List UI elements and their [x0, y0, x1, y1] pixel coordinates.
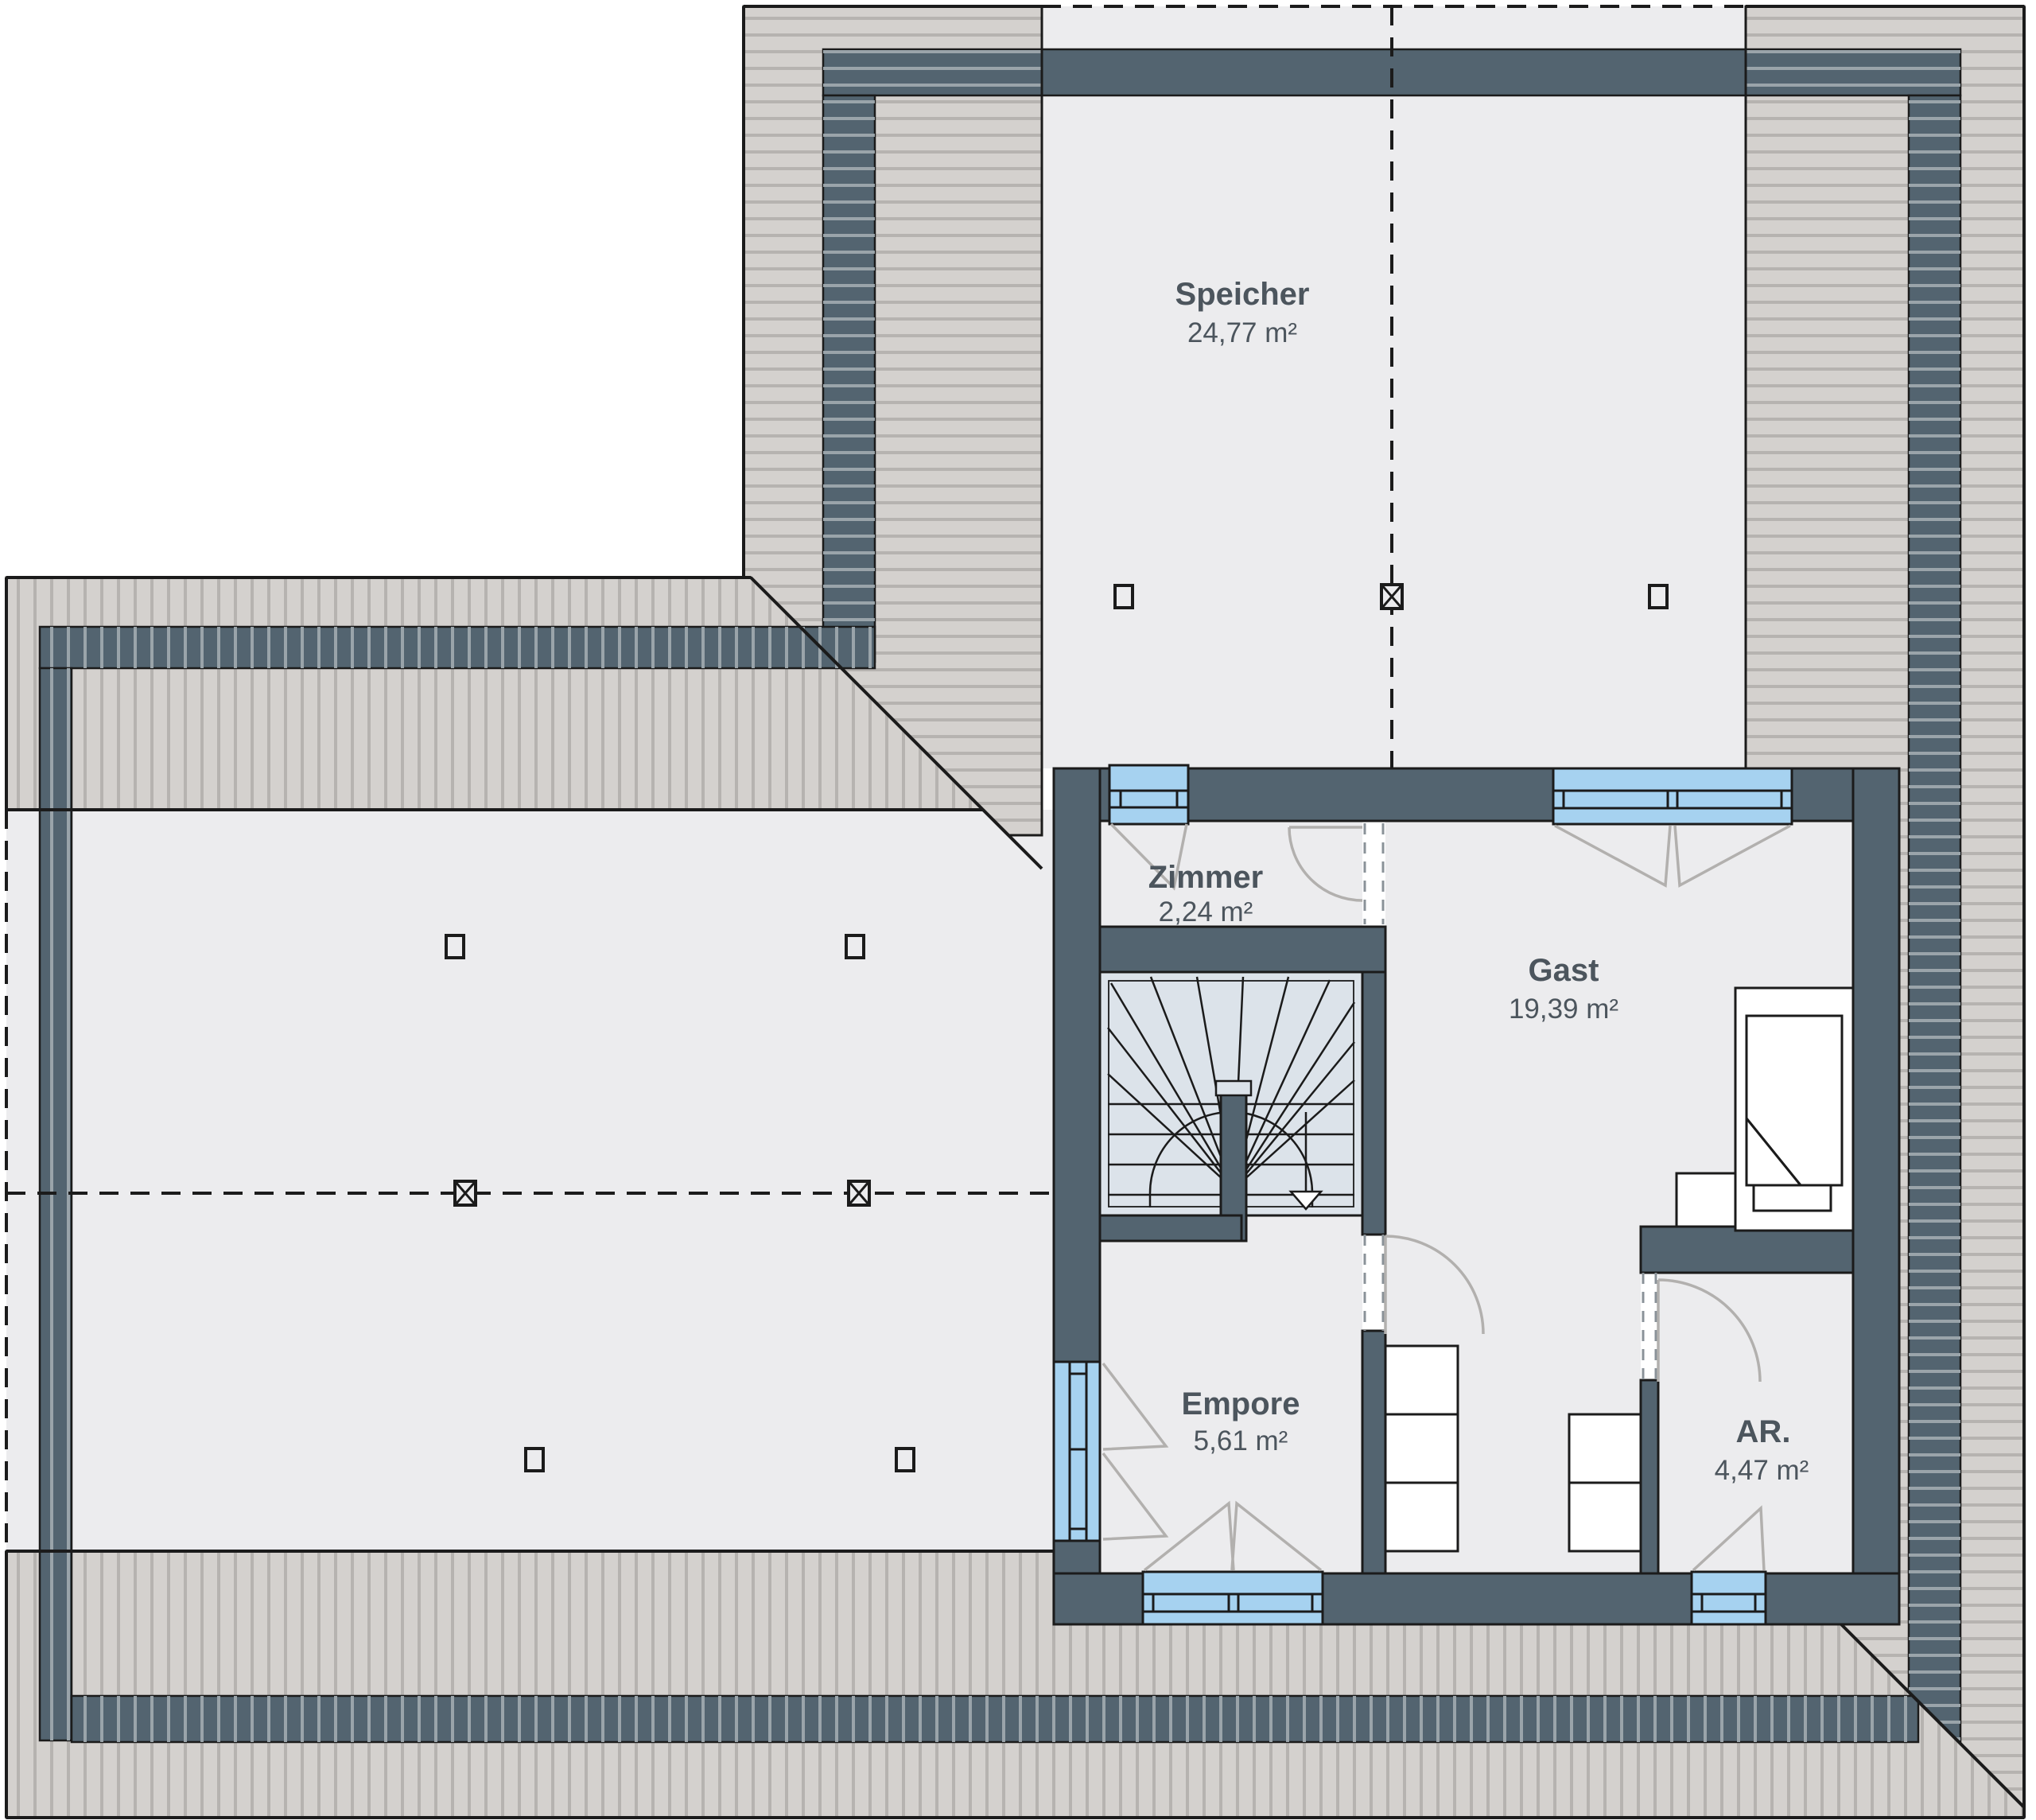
wall-right: [1853, 768, 1899, 1624]
wall-stair-right: [1362, 972, 1385, 1235]
wall-ar-left: [1641, 1380, 1658, 1573]
stair-newel-cap: [1216, 1081, 1251, 1095]
crossed-square-post: [1381, 585, 1402, 609]
gast-label: Gast: [1529, 953, 1599, 988]
open-square-post: [446, 935, 464, 958]
open-square-post: [846, 935, 864, 958]
ar-area: 4,47 m²: [1715, 1455, 1809, 1486]
open-square-post: [1649, 585, 1667, 608]
gast-area: 19,39 m²: [1509, 994, 1618, 1025]
zimmer-label: Zimmer: [1148, 860, 1264, 895]
speicher-area: 24,77 m²: [1187, 317, 1297, 348]
wall-empore-right: [1362, 1331, 1385, 1573]
crossed-square-post: [455, 1181, 476, 1205]
open-square-post: [1115, 585, 1133, 608]
speicher-floor: [1042, 6, 1746, 768]
wall-zimmer-bottom: [1100, 927, 1385, 972]
shelf-stack: [1569, 1414, 1641, 1551]
zimmer-area: 2,24 m²: [1159, 896, 1253, 927]
gast-window: [1553, 768, 1792, 824]
ar-label: AR.: [1736, 1414, 1791, 1449]
empore-area: 5,61 m²: [1194, 1425, 1288, 1456]
open-square-post: [896, 1449, 914, 1471]
staircase: [1100, 972, 1362, 1241]
wardrobe-shelf: [1385, 1346, 1458, 1551]
ar-window: [1692, 1572, 1766, 1624]
zimmer-window: [1109, 765, 1188, 824]
empore-left-window: [1054, 1362, 1100, 1541]
empore-bottom-window: [1143, 1572, 1323, 1624]
left-open-floor: [6, 810, 1054, 1551]
wall-ar-top: [1641, 1227, 1853, 1273]
nightstand: [1677, 1173, 1735, 1227]
floor-plan: Speicher 24,77 m² Zimmer 2,24 m² Gast 19…: [0, 0, 2036, 1820]
crossed-square-post: [849, 1181, 869, 1205]
open-square-post: [526, 1449, 543, 1471]
stair-bottom-wall: [1100, 1215, 1241, 1241]
bed: [1735, 988, 1853, 1231]
empore-label: Empore: [1182, 1386, 1300, 1421]
speicher-label: Speicher: [1175, 277, 1310, 312]
